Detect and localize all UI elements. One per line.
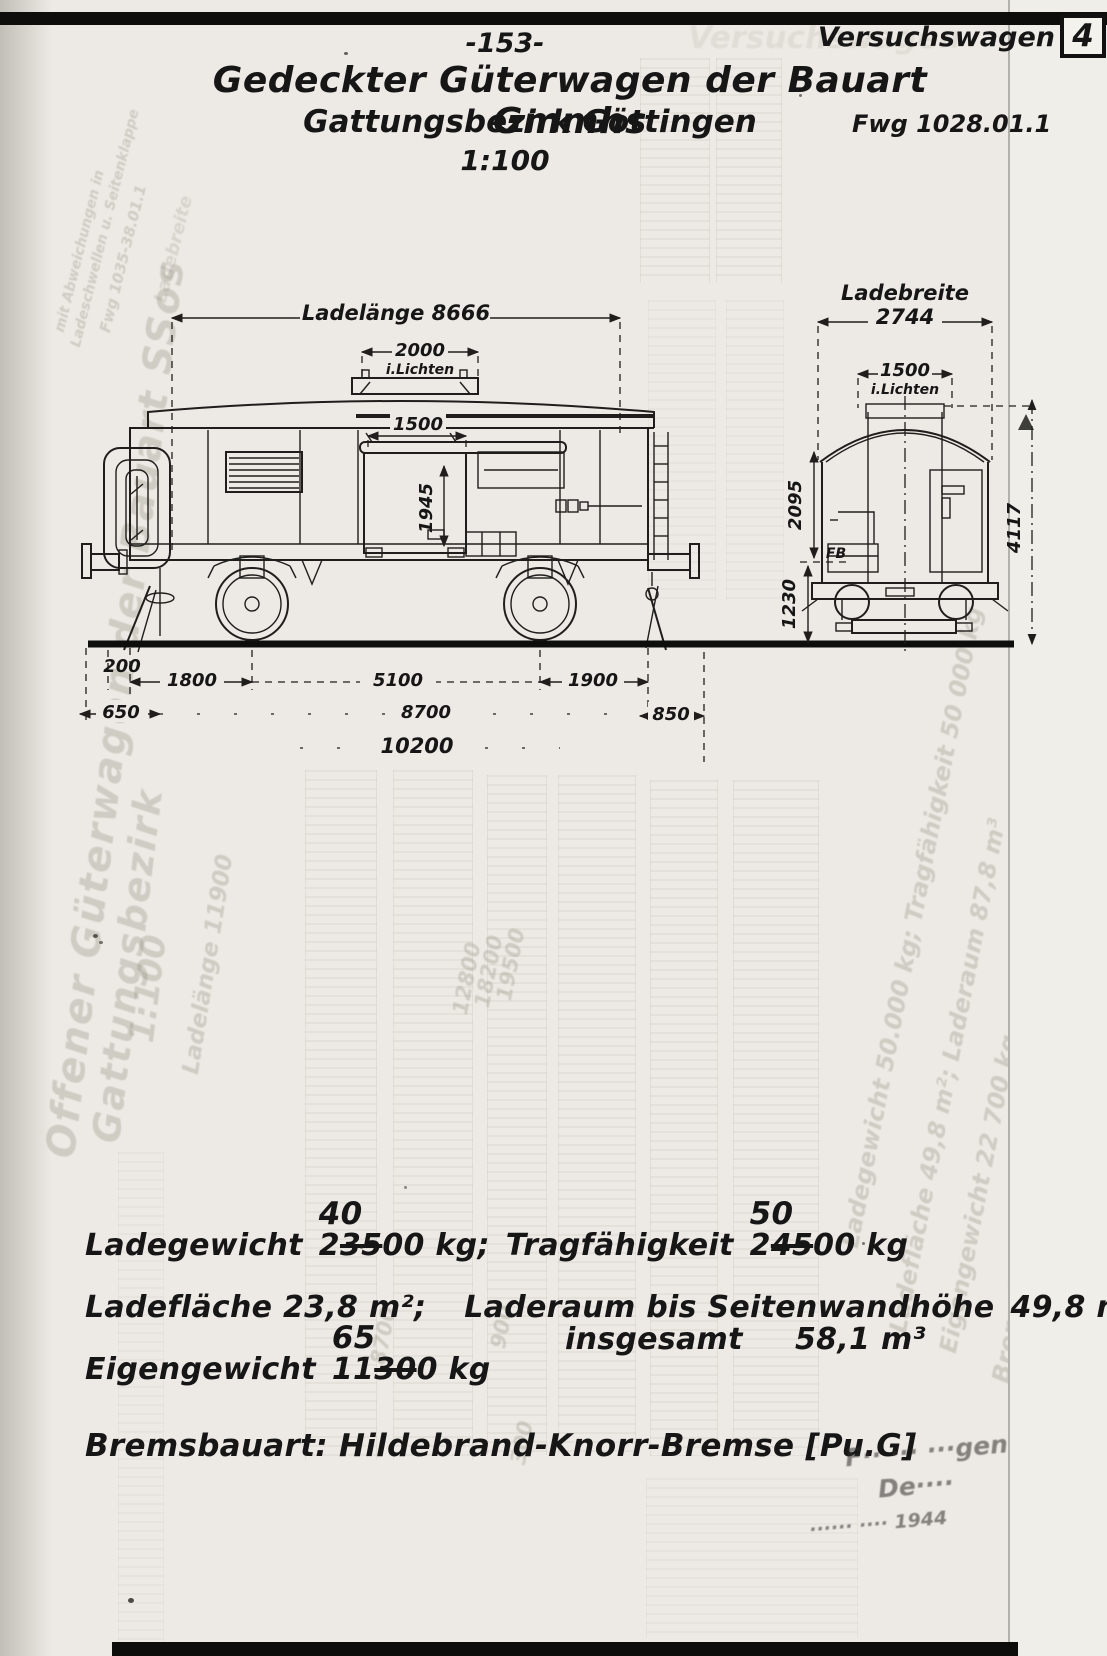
dim-wheelbase: 5100: [373, 670, 423, 691]
corner-number-box: 4: [1060, 14, 1106, 58]
series-label: Versuchswagen: [770, 22, 1055, 53]
bremsbauart-text: Bremsbauart: Hildebrand-Knorr-Bremse [Pu…: [85, 1428, 917, 1464]
insgesamt-label: insgesamt: [565, 1322, 743, 1357]
side-view: Ladelänge 8666 2000 i.Lichten: [82, 300, 699, 652]
laderaum-label: Laderaum bis Seitenwandhöhe: [464, 1290, 994, 1325]
eigengewicht-struck-digits: 30: [374, 1352, 416, 1387]
dim-buffer-left: 650: [102, 702, 140, 723]
buffer-right: [648, 544, 699, 578]
drawing-reference: Fwg 1028.01.1: [852, 110, 1051, 138]
end-ladder: [654, 432, 668, 560]
ink-speck: [99, 941, 103, 944]
dim-end-opening: 1500: [880, 360, 930, 381]
dim-body-height: 2095: [785, 480, 806, 530]
approval-stamp: F·· ··· ···gen De···· ······ ···· 1944: [802, 1427, 1015, 1546]
dim-total-height: 4117: [1004, 502, 1025, 554]
ladegewicht-unit: 00 kg;: [382, 1228, 489, 1263]
insgesamt-text: insgesamt: [565, 1322, 743, 1357]
louvre-vent: [226, 452, 302, 492]
brake-rigging: [124, 568, 666, 652]
scan-bottom-bar: [112, 1642, 1018, 1656]
page-subtitle: Gattungsbezirk Göttingen: [240, 104, 820, 140]
ghost-grid-strip: [118, 1152, 164, 1650]
ghost-mid-number: 18200: [470, 933, 508, 1009]
dim-frame-length: 8700: [401, 702, 451, 723]
spec-line-weights: Ladegewicht4023500 kg;Tragfähigkeit50245…: [85, 1228, 908, 1263]
ghost-mid-number: 12800: [448, 940, 486, 1016]
dim-ladelaenge-label: Ladelänge 8666: [302, 301, 490, 325]
ink-speck: [404, 1186, 407, 1189]
wheel-left: [208, 556, 296, 640]
scanned-drawing-page: Versuchswagen Offener Güterwagen der Bau…: [0, 0, 1107, 1656]
ghost-left-subtitle: Gattungsbezirk: [84, 785, 171, 1145]
dim-overhang: 200: [103, 656, 141, 677]
insgesamt-volume: 58,1 m³: [795, 1322, 926, 1357]
laderaum-value: 49,8 m³: [1010, 1290, 1107, 1325]
stamp-line: ······ ···· 1944: [808, 1495, 1015, 1547]
eigengewicht-value: 11: [332, 1352, 374, 1387]
dim-end-opening-note: i.Lichten: [871, 382, 939, 398]
tragfaehigkeit-unit: 00 kg: [813, 1228, 908, 1263]
corner-number: 4: [1072, 18, 1094, 54]
brake-type-line: Bremsbauart: Hildebrand-Knorr-Bremse [Pu…: [85, 1428, 917, 1464]
tragfaehigkeit-value: 2: [750, 1228, 771, 1263]
spec-line-tare: Eigengewicht6511300 kg: [85, 1352, 491, 1387]
ink-speck: [360, 1246, 363, 1249]
dim-roof-opening-note: i.Lichten: [386, 362, 454, 378]
page-number: -153-: [425, 28, 585, 59]
ink-speck: [799, 94, 802, 97]
ghost-mid-number: 19500: [492, 926, 530, 1002]
end-platform-housing: [104, 448, 170, 568]
wheel-right: [496, 556, 584, 640]
tragfaehigkeit-label: Tragfähigkeit: [506, 1228, 734, 1263]
dim-ladebreite-label: Ladebreite: [841, 281, 969, 305]
eigengewicht-label: Eigengewicht: [85, 1352, 316, 1387]
ink-speck: [344, 52, 348, 55]
drawing-scale: 1:100: [425, 144, 585, 177]
dim-door-width: 1500: [393, 414, 443, 435]
dim-ladebreite-value: 2744: [876, 305, 934, 329]
dim-roof-opening: 2000: [395, 340, 445, 361]
tragfaehigkeit-correction: 50: [750, 1196, 794, 1232]
ladegewicht-value: 2: [319, 1228, 340, 1263]
ghost-mid-label: Ladelänge 11900: [178, 853, 238, 1076]
insgesamt-value: 58,1 m³: [795, 1322, 926, 1357]
ladegewicht-label: Ladegewicht: [85, 1228, 303, 1263]
page-fold-margin: [1008, 0, 1107, 1656]
ghost-left-scale: 1:100: [122, 933, 175, 1045]
eigengewicht-correction: 65: [332, 1320, 376, 1356]
page-edge-shadow: [0, 0, 52, 1656]
ghost-grid-strip: [487, 775, 547, 1455]
ink-speck: [93, 934, 98, 938]
dim-end-to-axle: 1800: [167, 670, 217, 691]
dim-buffer-right: 850: [652, 704, 690, 725]
underframe-dimensions: 200 1800 5100 1900 650 8700 850 10200: [80, 648, 704, 762]
tragfaehigkeit-struck-digits: 45: [771, 1228, 813, 1263]
end-view: Ladebreite 2744 1500 i.Lichten: [779, 281, 1034, 652]
dim-total-length: 10200: [380, 734, 453, 758]
spec-line-area: Ladefläche 23,8 m²;Laderaum bis Seitenwa…: [85, 1290, 1107, 1325]
dim-door-height: 1945: [416, 483, 437, 533]
wagon-technical-drawing: Ladelänge 8666 2000 i.Lichten: [70, 270, 1050, 770]
dim-buffer-height: 1230: [779, 579, 800, 629]
floor-mark-label: FB: [826, 546, 846, 562]
ladegewicht-correction: 40: [319, 1196, 363, 1232]
ink-speck: [128, 1598, 134, 1603]
dim-axle-to-end: 1900: [568, 670, 618, 691]
ink-speck: [862, 1242, 865, 1245]
eigengewicht-unit: 0 kg: [417, 1352, 491, 1387]
